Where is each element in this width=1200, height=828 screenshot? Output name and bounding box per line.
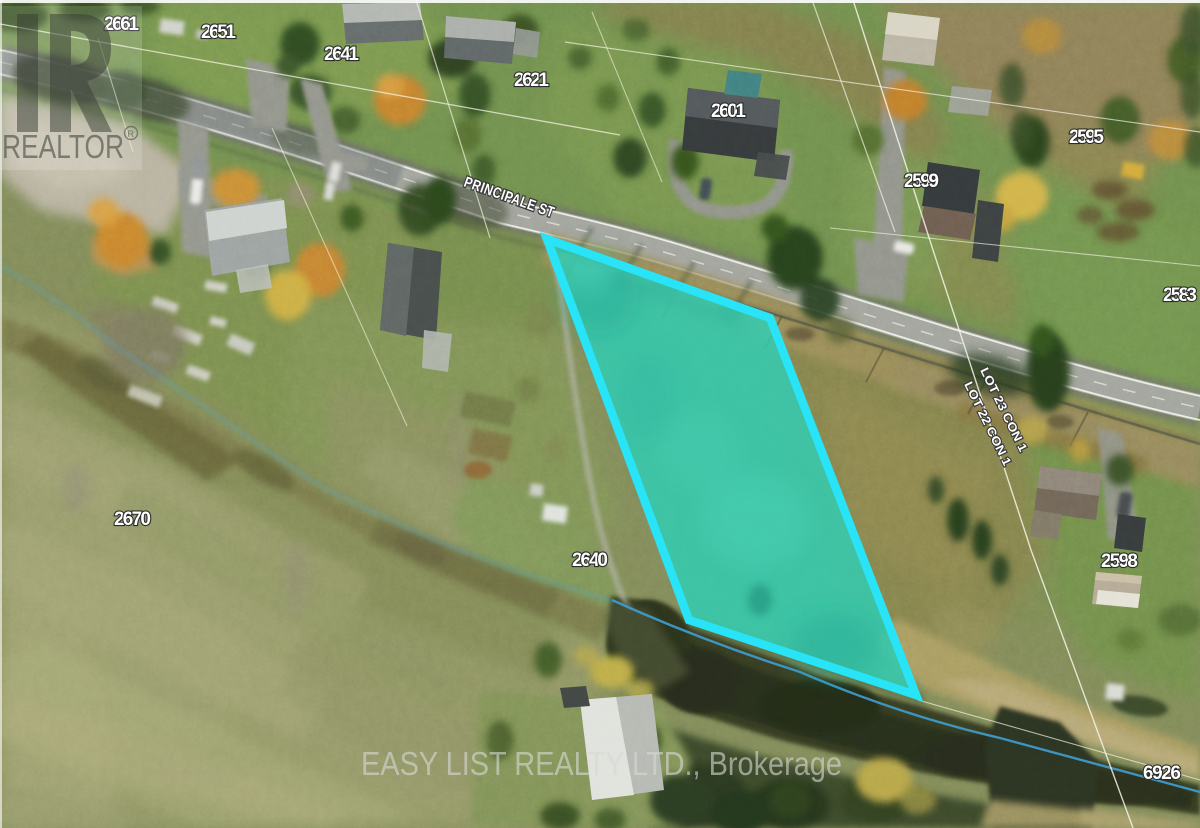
svg-text:2599: 2599 — [904, 171, 939, 192]
svg-text:2601: 2601 — [711, 101, 746, 122]
svg-text:2651: 2651 — [201, 22, 236, 43]
svg-text:2640: 2640 — [572, 550, 608, 571]
svg-text:2598: 2598 — [1101, 551, 1138, 572]
svg-text:REALTOR: REALTOR — [2, 128, 124, 165]
svg-text:2595: 2595 — [1069, 127, 1104, 148]
svg-text:2641: 2641 — [324, 44, 359, 65]
svg-text:EASY LIST REALTY LTD., Broker: EASY LIST REALTY LTD., Brokerage — [361, 745, 842, 782]
svg-text:2583: 2583 — [1163, 285, 1197, 306]
svg-text:2670: 2670 — [114, 509, 151, 530]
svg-text:R: R — [128, 129, 135, 139]
svg-text:2621: 2621 — [514, 70, 549, 91]
svg-text:6926: 6926 — [1143, 763, 1181, 784]
